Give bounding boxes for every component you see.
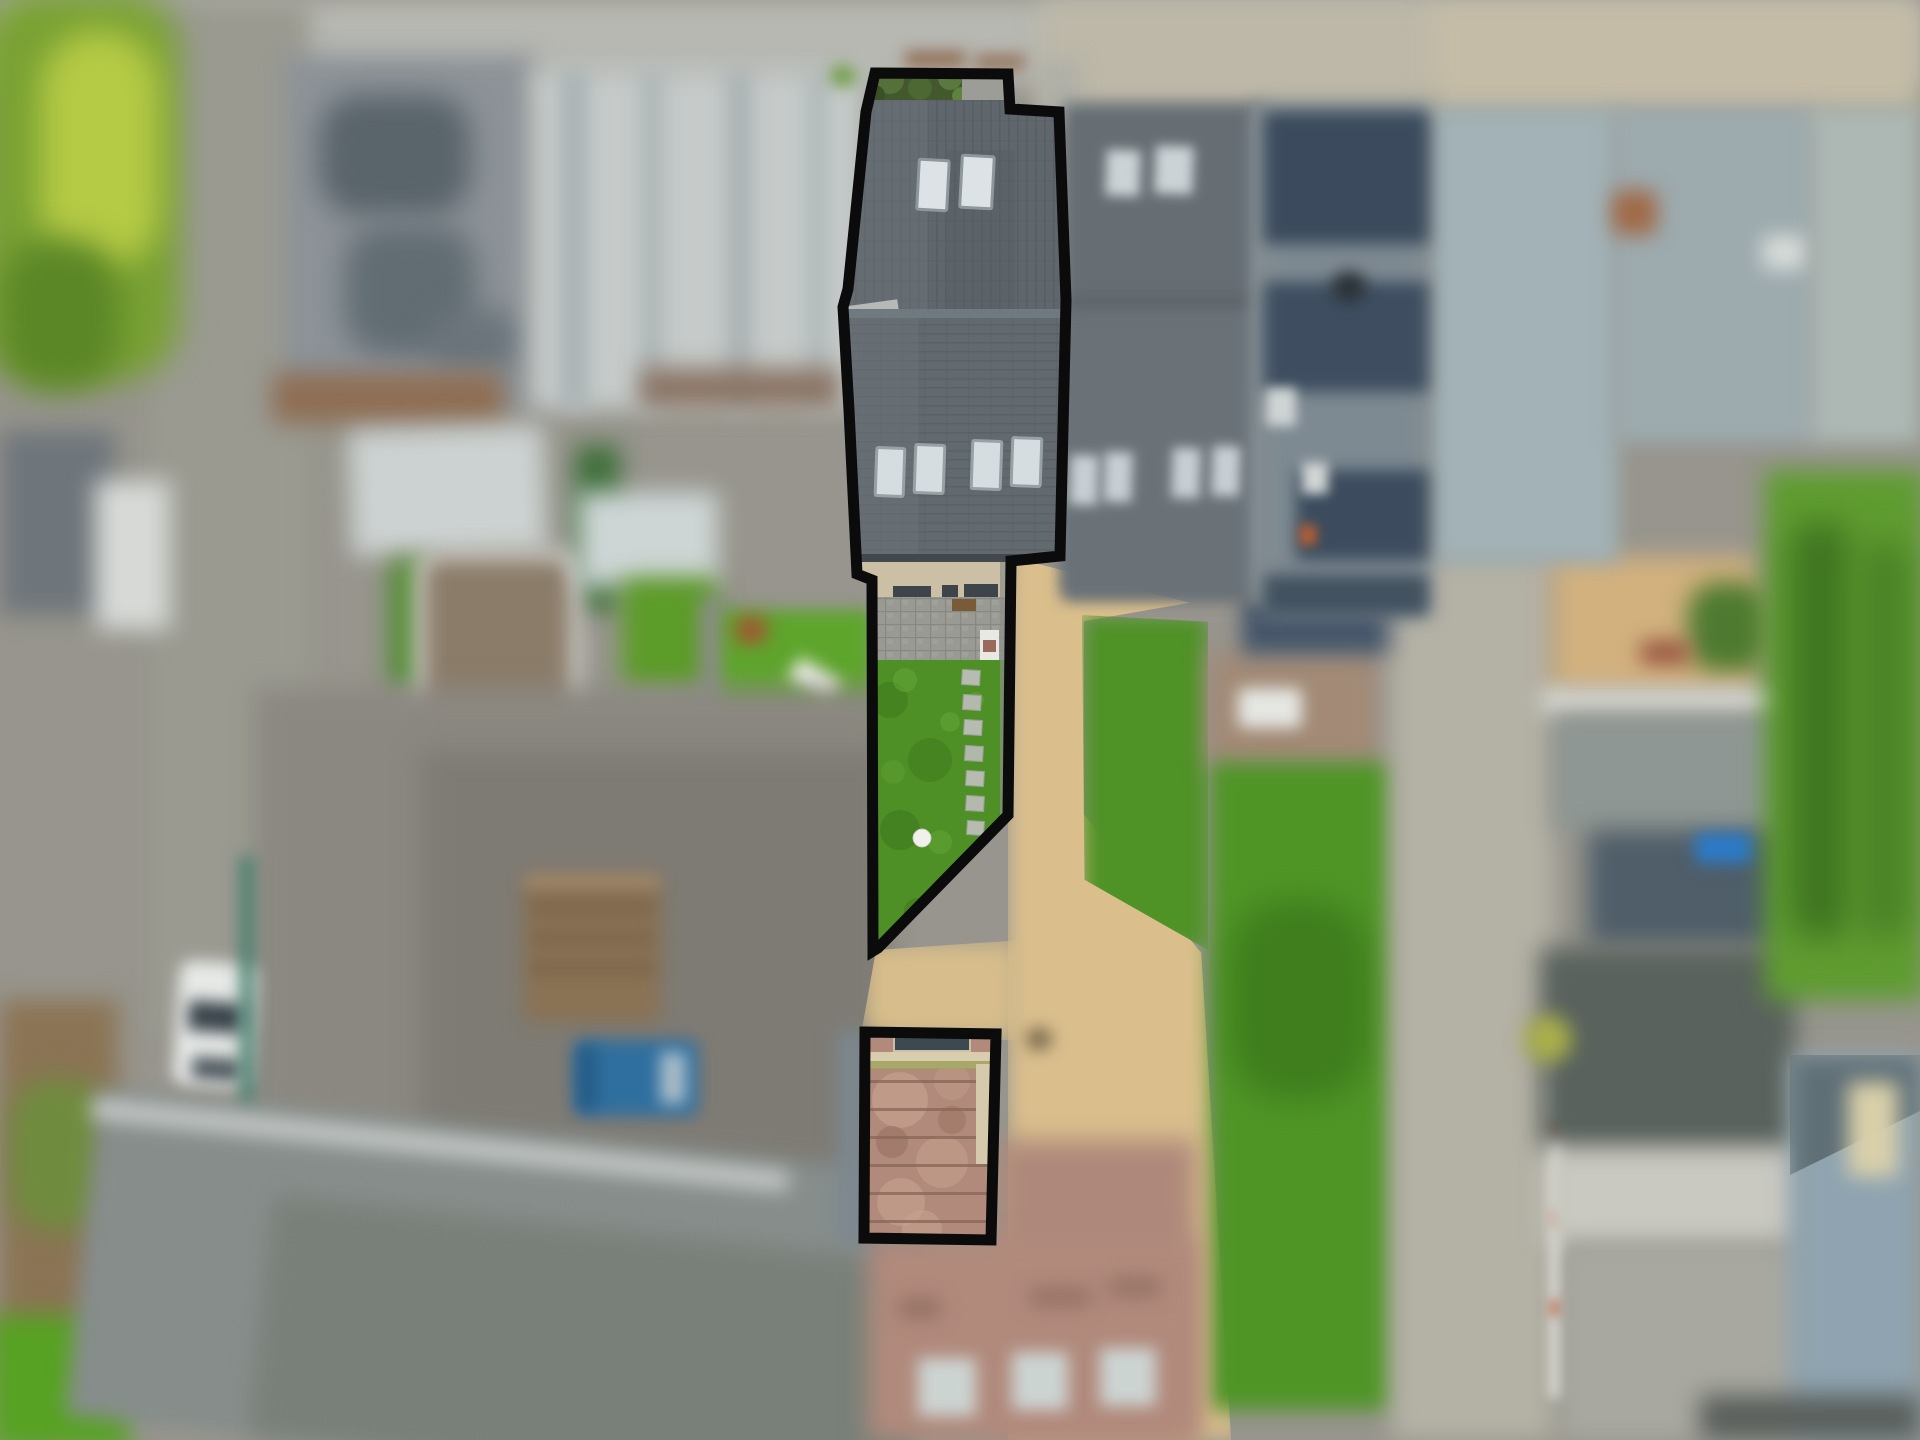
skylight-lower-3 xyxy=(971,441,1002,490)
property-outline-layer xyxy=(0,0,1920,1440)
stepping-stone-7 xyxy=(967,821,985,836)
annex-parcel-content xyxy=(858,1028,1000,1250)
facade-window-3 xyxy=(964,584,998,597)
facade-window-2 xyxy=(942,585,958,597)
lawn-dark-patch xyxy=(880,810,920,850)
skylight-lower-1 xyxy=(875,448,905,497)
stepping-stone-6 xyxy=(966,796,985,812)
lawn-light-patch xyxy=(940,712,960,732)
annex-seam xyxy=(860,1192,998,1195)
stepping-stone-1 xyxy=(962,670,981,686)
lawn-light-patch xyxy=(893,668,917,692)
patio-doormat xyxy=(952,599,976,611)
lawn-dark-patch xyxy=(908,738,952,782)
annex-seam xyxy=(860,1220,998,1223)
facade-window-1 xyxy=(893,586,931,598)
stepping-stone-3 xyxy=(964,720,983,736)
lawn-light-patch xyxy=(928,830,952,854)
lawn-light-patch xyxy=(881,760,905,784)
annex-roof-stain xyxy=(876,1126,908,1158)
stepping-stone-5 xyxy=(966,771,985,787)
skylight-lower-4 xyxy=(1011,438,1042,487)
garden-white-ball xyxy=(913,829,931,847)
skylight-lower-2 xyxy=(914,445,945,494)
roof-ridge xyxy=(843,309,1068,319)
stepping-stone-4 xyxy=(965,746,984,762)
annex-seam xyxy=(860,1164,998,1167)
skylight-upper-1 xyxy=(917,159,950,211)
hedge-shrub-blob xyxy=(908,76,932,100)
annex-roof-patch xyxy=(916,1136,968,1188)
aerial-photo-canvas xyxy=(0,0,1920,1440)
annex-moss-band xyxy=(864,1061,992,1069)
skylight-upper-2 xyxy=(960,155,995,209)
patio-red-box xyxy=(983,640,996,652)
stepping-stone-2 xyxy=(963,695,982,711)
